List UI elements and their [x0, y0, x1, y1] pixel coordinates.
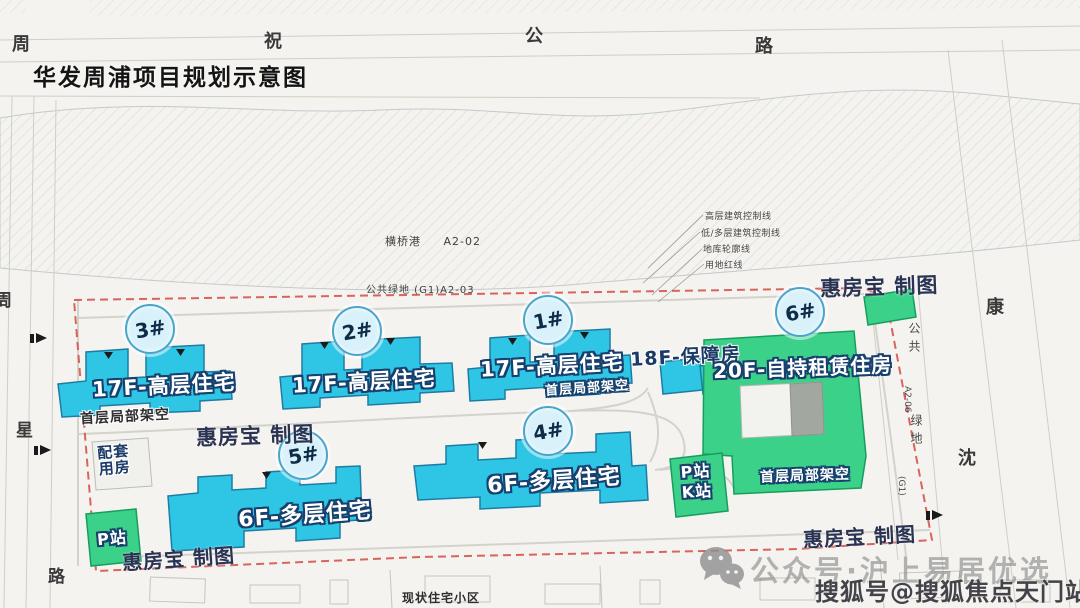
badge-building-6: 6#	[775, 287, 825, 337]
badge-building-3: 3#	[125, 304, 175, 354]
badge-building-6-text: 6#	[783, 298, 817, 327]
building-6-note: 首层局部架空	[760, 463, 851, 486]
road-top-char-2: 祝	[264, 27, 282, 53]
badge-building-4-text: 4#	[531, 417, 565, 446]
building-6-core	[790, 382, 824, 436]
pk-station-label-line2: K站	[681, 481, 713, 503]
road-top-char-4: 路	[755, 32, 773, 58]
road-left-char-3: 路	[48, 562, 65, 587]
road-right-char-2: 沈	[958, 444, 976, 470]
road-top-char-1: 周	[12, 30, 30, 56]
road-left-char-1: 周	[0, 286, 12, 311]
site-plan: 华发周浦项目规划示意图 周 祝 公 路 周 星 路 康 沈 公共 A2-06 绿…	[0, 0, 1080, 608]
badge-building-1: 1#	[523, 295, 573, 345]
green-strip-code: A2-06	[902, 386, 912, 413]
existing-area-label: 现状住宅小区	[402, 589, 480, 606]
legend-redline: 用地红线	[705, 258, 743, 271]
badge-building-4: 4#	[523, 406, 573, 456]
sohu-account-watermark: 搜狐号@搜狐焦点天门站	[815, 572, 1080, 607]
badge-building-3-text: 3#	[133, 315, 167, 344]
pk-station-label: P站 K站	[680, 461, 713, 503]
green-top-label: 公共绿地 (G1)A2-03	[366, 281, 475, 296]
road-top-char-3: 公	[525, 22, 543, 48]
page-title: 华发周浦项目规划示意图	[33, 58, 308, 92]
canal-name: 横桥港	[385, 235, 421, 248]
brand-watermark-center: 惠房宝 制图	[196, 418, 315, 452]
legend-highrise-line: 高层建筑控制线	[705, 209, 772, 222]
legend-basement-line: 地库轮廓线	[703, 242, 751, 255]
wechat-icon	[694, 541, 748, 595]
badge-building-2-text: 2#	[340, 317, 374, 346]
road-left-char-2: 星	[16, 416, 33, 441]
green-strip-g1: (G1)	[896, 476, 906, 496]
pk-station-label-line1: P站	[680, 461, 712, 483]
brand-watermark-top-right: 惠房宝 制图	[820, 269, 939, 303]
road-right-char-1: 康	[986, 293, 1004, 319]
badge-building-1-text: 1#	[531, 306, 565, 335]
canal-label: 横桥港 A2-02	[385, 233, 481, 249]
canal-code: A2-02	[444, 235, 482, 248]
badge-building-2: 2#	[332, 306, 382, 356]
support-building-label-line2: 用房	[98, 459, 131, 478]
green-strip-name-bottom: 绿地	[908, 414, 925, 450]
support-building-label: 配套 用房	[97, 443, 132, 478]
green-strip-name-top: 公共	[906, 322, 923, 358]
legend-lowrise-line: 低/多层建筑控制线	[701, 226, 781, 239]
